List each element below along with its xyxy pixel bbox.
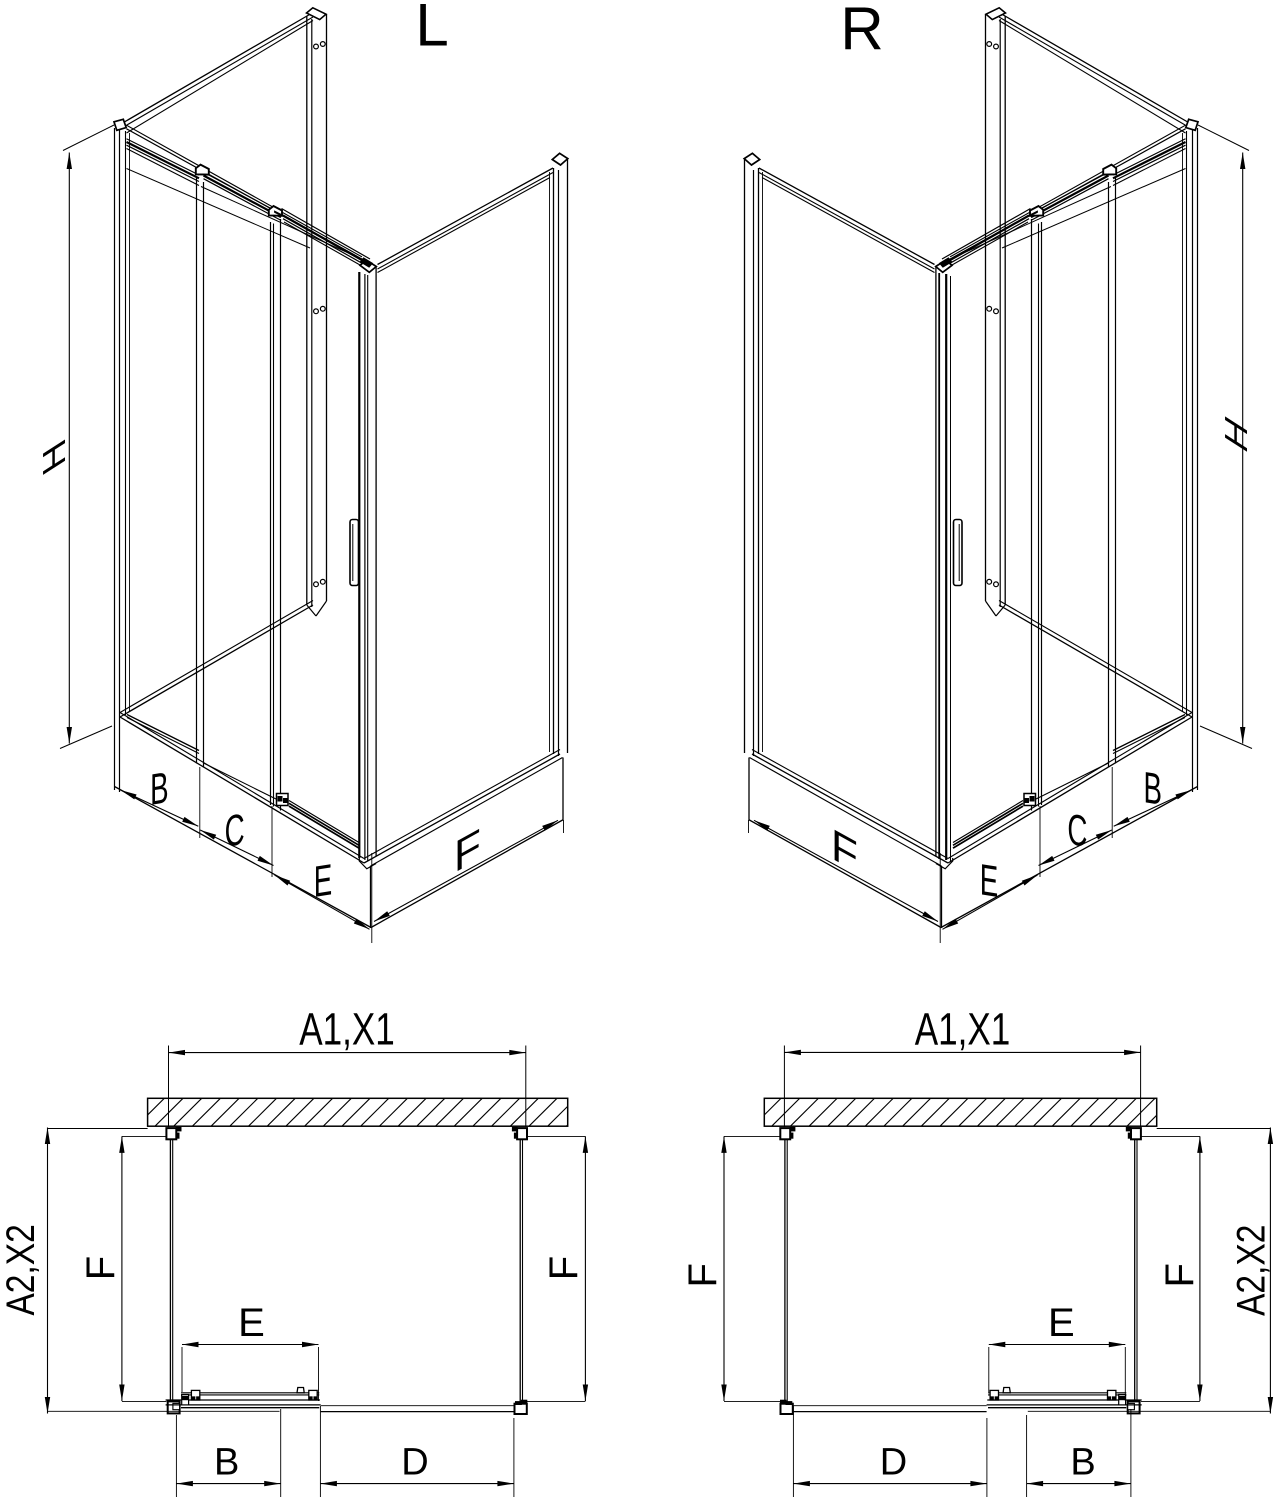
svg-text:F: F bbox=[681, 1263, 725, 1287]
svg-text:B: B bbox=[214, 1442, 239, 1484]
svg-text:E: E bbox=[314, 855, 332, 907]
svg-text:E: E bbox=[1048, 1301, 1075, 1345]
svg-text:B: B bbox=[150, 763, 168, 815]
svg-text:D: D bbox=[880, 1442, 907, 1484]
svg-text:B: B bbox=[1143, 763, 1161, 815]
svg-text:A2,X2: A2,X2 bbox=[0, 1224, 43, 1316]
svg-text:A1,X1: A1,X1 bbox=[915, 1003, 1011, 1054]
svg-text:A2,X2: A2,X2 bbox=[1229, 1225, 1273, 1317]
svg-text:F: F bbox=[542, 1256, 586, 1280]
svg-text:L: L bbox=[415, 0, 448, 59]
svg-text:E: E bbox=[238, 1301, 265, 1345]
svg-text:E: E bbox=[980, 855, 998, 907]
svg-text:F: F bbox=[79, 1256, 123, 1280]
svg-text:C: C bbox=[1067, 804, 1087, 856]
svg-text:B: B bbox=[1070, 1442, 1095, 1484]
svg-text:C: C bbox=[225, 804, 245, 856]
svg-text:R: R bbox=[840, 0, 883, 63]
svg-text:A1,X1: A1,X1 bbox=[299, 1003, 395, 1054]
svg-text:D: D bbox=[401, 1442, 428, 1484]
svg-text:F: F bbox=[1158, 1263, 1202, 1287]
